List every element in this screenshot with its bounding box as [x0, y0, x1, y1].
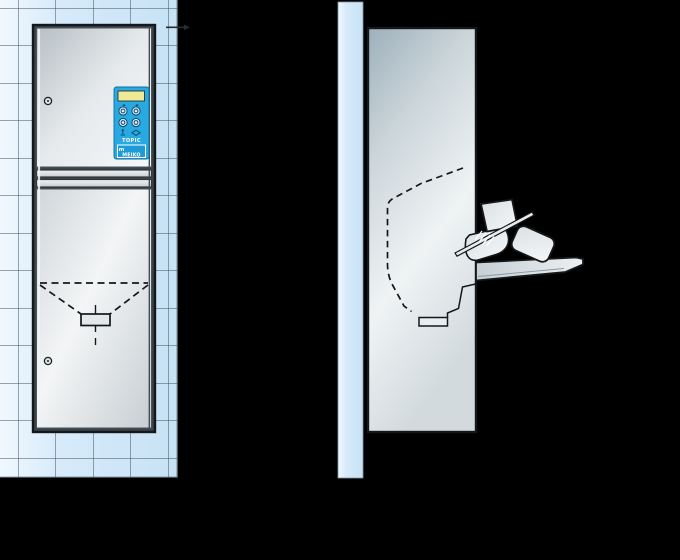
- lock-icon-upper: [44, 97, 51, 104]
- urine-bottle: [509, 224, 556, 264]
- front-view: TOPIC m MEIKO: [0, 0, 190, 478]
- logo-text: MEIKO: [122, 153, 140, 159]
- indicator-mark-left: [123, 105, 125, 107]
- divider-rail-top: [37, 170, 152, 177]
- indicator-mark-right: [136, 105, 138, 107]
- flap-handle: [81, 314, 110, 326]
- brand-label: TOPIC: [122, 138, 141, 144]
- appliance-side: [368, 28, 476, 432]
- illustration-canvas: TOPIC m MEIKO: [0, 0, 680, 560]
- appliance-front: TOPIC m MEIKO: [33, 25, 155, 432]
- flap-shape: [476, 258, 583, 281]
- wall-section: [338, 2, 363, 478]
- lower-door: [37, 189, 152, 428]
- diagram-svg: TOPIC m MEIKO: [0, 0, 680, 560]
- handle-side-profile: [419, 318, 448, 327]
- program-button-3: [119, 118, 127, 126]
- program-button-4: [132, 118, 140, 126]
- divider-rail-bottom: [37, 180, 152, 188]
- drop-flap: [476, 258, 583, 281]
- program-button-2: [132, 107, 140, 115]
- side-view: [338, 2, 583, 478]
- lock-icon-lower: [44, 357, 51, 364]
- lcd-display: [118, 91, 145, 101]
- logo-initial: m: [119, 147, 125, 153]
- control-panel: TOPIC m MEIKO: [114, 87, 149, 159]
- meiko-logo: m MEIKO: [118, 145, 146, 159]
- program-button-1: [119, 107, 127, 115]
